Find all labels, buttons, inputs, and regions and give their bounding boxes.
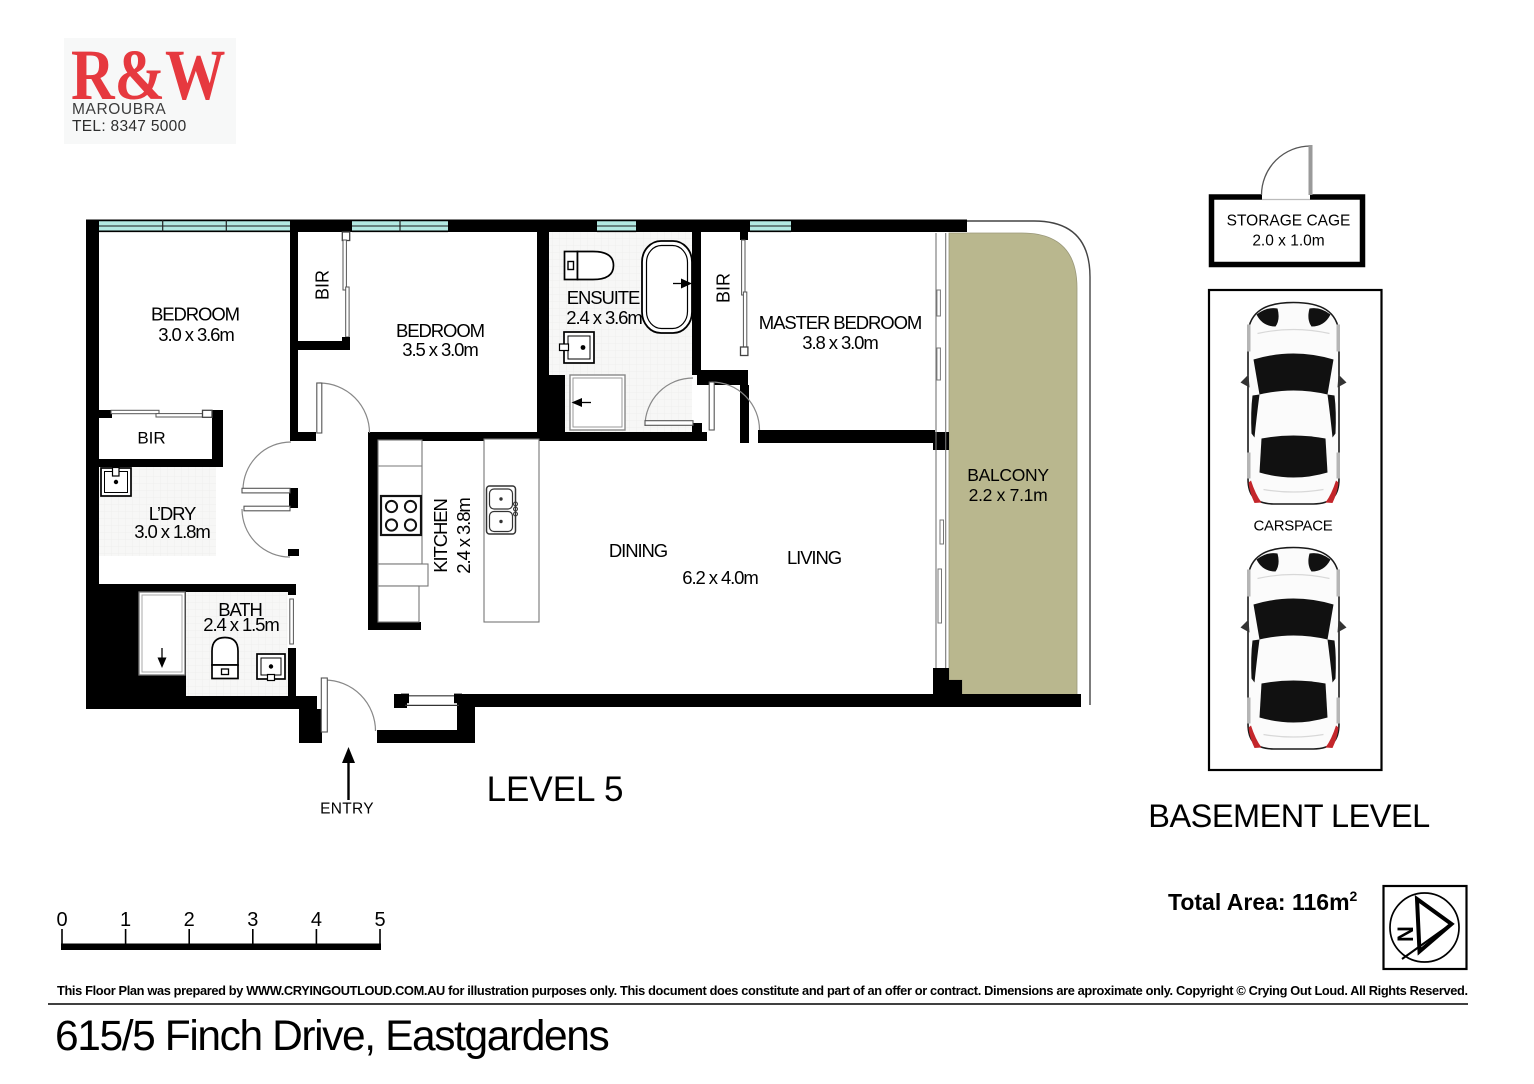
svg-text:3.5 x 3.0m: 3.5 x 3.0m [402,339,478,360]
svg-text:ENTRY: ENTRY [320,801,374,818]
svg-text:LEVEL 5: LEVEL 5 [487,770,624,809]
svg-text:BIR: BIR [137,429,165,448]
svg-text:TEL: 8347 5000: TEL: 8347 5000 [72,118,187,135]
svg-text:3.0 x 1.8m: 3.0 x 1.8m [134,521,210,542]
svg-text:3: 3 [247,909,258,931]
svg-text:BEDROOM: BEDROOM [396,320,484,341]
svg-text:CARSPACE: CARSPACE [1253,518,1332,535]
svg-text:2.2 x 7.1m: 2.2 x 7.1m [969,485,1048,505]
svg-text:MAROUBRA: MAROUBRA [72,101,166,118]
svg-text:2.4 x 1.5m: 2.4 x 1.5m [203,614,279,635]
svg-text:BIR: BIR [313,270,333,300]
svg-text:0: 0 [56,909,67,931]
svg-text:N: N [1393,926,1418,942]
svg-text:2.4 x 3.8m: 2.4 x 3.8m [453,498,474,574]
svg-text:Total Area: 116m2: Total Area: 116m2 [1168,888,1358,915]
svg-text:MASTER BEDROOM: MASTER BEDROOM [759,312,921,333]
svg-text:3.0 x 3.6m: 3.0 x 3.6m [158,324,234,345]
svg-text:BASEMENT LEVEL: BASEMENT LEVEL [1148,798,1429,834]
svg-text:1: 1 [120,909,131,931]
svg-text:STORAGE CAGE: STORAGE CAGE [1227,213,1351,230]
svg-text:4: 4 [311,909,322,931]
svg-text:BEDROOM: BEDROOM [151,304,239,325]
svg-text:ENSUITE: ENSUITE [567,287,640,308]
svg-text:2.0 x 1.0m: 2.0 x 1.0m [1252,233,1324,250]
svg-text:5: 5 [374,909,385,931]
svg-text:2: 2 [184,909,195,931]
svg-text:KITCHEN: KITCHEN [430,499,451,573]
svg-text:BIR: BIR [714,273,734,303]
svg-text:BALCONY: BALCONY [967,465,1049,485]
svg-text:615/5 Finch Drive, Eastgardens: 615/5 Finch Drive, Eastgardens [55,1013,608,1060]
svg-text:2.4 x 3.6m: 2.4 x 3.6m [566,307,642,328]
svg-text:6.2 x 4.0m: 6.2 x 4.0m [682,567,758,588]
svg-text:This Floor Plan was prepared b: This Floor Plan was prepared by WWW.CRYI… [57,983,1468,998]
svg-text:LIVING: LIVING [787,547,842,568]
svg-text:3.8 x 3.0m: 3.8 x 3.0m [802,332,878,353]
svg-text:DINING: DINING [609,540,668,561]
